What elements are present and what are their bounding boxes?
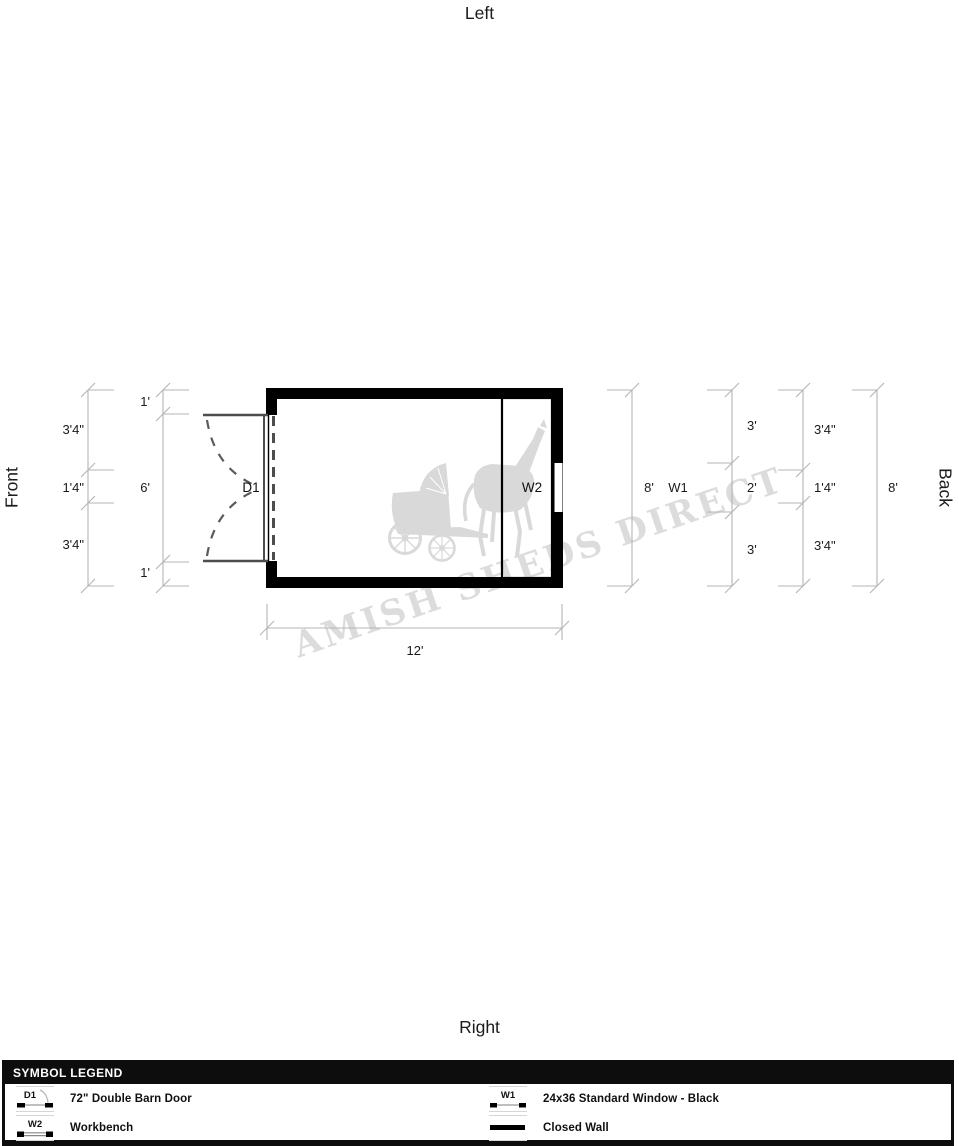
legend-item-door: D1 72" Double Barn Door bbox=[5, 1084, 478, 1113]
dim-left-inner-top: 1' bbox=[140, 394, 150, 409]
window-symbol-icon: W1 bbox=[489, 1086, 527, 1112]
window-w1-opening bbox=[555, 463, 563, 512]
symbol-legend: SYMBOL LEGEND D1 72" Double Barn Door W1… bbox=[2, 1060, 954, 1146]
svg-text:W2: W2 bbox=[28, 1119, 42, 1130]
dim-right-inner-bottom: 3' bbox=[747, 542, 757, 557]
door-swing-arc-bottom bbox=[207, 489, 259, 556]
legend-item-workbench: W2 Workbench bbox=[5, 1113, 478, 1142]
workbench-symbol-icon: W2 bbox=[16, 1115, 54, 1141]
dimension-chain-left-outer: 3'4" 1'4" 3'4" bbox=[62, 383, 114, 593]
dim-right-inner-top: 3' bbox=[747, 418, 757, 433]
window-ref-label: W1 bbox=[668, 480, 688, 495]
wall-front-lower bbox=[266, 561, 277, 588]
floor-plan: 3'4" 1'4" 3'4" 1' 6' 1' 8' W1 3' 2' 3' 3… bbox=[0, 0, 959, 1040]
dim-back-overall: 8' bbox=[888, 480, 898, 495]
dimension-chain-right-inner: 3' 2' 3' bbox=[707, 383, 757, 593]
dim-left-inner-mid: 6' bbox=[140, 480, 150, 495]
svg-text:W1: W1 bbox=[501, 1090, 516, 1101]
closed-wall-symbol-icon bbox=[489, 1115, 527, 1141]
dim-right-inner-mid: 2' bbox=[747, 480, 757, 495]
dim-right-outer-mid: 1'4" bbox=[814, 480, 836, 495]
door-d1: D1 bbox=[203, 415, 274, 561]
legend-item-closed-wall: Closed Wall bbox=[478, 1113, 951, 1142]
dim-left-outer-mid: 1'4" bbox=[62, 480, 84, 495]
dimension-chain-left-inner: 1' 6' 1' bbox=[140, 383, 189, 593]
door-label: D1 bbox=[242, 480, 259, 495]
legend-grid: D1 72" Double Barn Door W1 24x36 Standar… bbox=[5, 1084, 951, 1142]
dim-width-overall: 12' bbox=[407, 643, 424, 658]
dim-left-outer-top: 3'4" bbox=[62, 422, 84, 437]
dimension-front-overall: 8' W1 bbox=[607, 383, 688, 593]
workbench-w2: W2 bbox=[502, 398, 552, 578]
dimension-chain-right-outer: 3'4" 1'4" 3'4" bbox=[778, 383, 836, 593]
workbench-label: W2 bbox=[522, 480, 542, 495]
door-swing-arc-top bbox=[207, 420, 259, 487]
dimension-back-overall: 8' bbox=[852, 383, 898, 593]
legend-label-workbench: Workbench bbox=[70, 1122, 133, 1134]
legend-label-door: 72" Double Barn Door bbox=[70, 1093, 192, 1105]
dim-front-overall: 8' bbox=[644, 480, 654, 495]
legend-label-window: 24x36 Standard Window - Black bbox=[543, 1093, 719, 1105]
shed-walls bbox=[266, 388, 563, 588]
dim-right-outer-bottom: 3'4" bbox=[814, 538, 836, 553]
dimension-width-overall: 12' bbox=[260, 604, 569, 658]
dim-left-inner-bottom: 1' bbox=[140, 565, 150, 580]
dim-left-outer-bottom: 3'4" bbox=[62, 537, 84, 552]
legend-title: SYMBOL LEGEND bbox=[5, 1063, 951, 1084]
svg-text:D1: D1 bbox=[24, 1090, 37, 1101]
wall-front-upper bbox=[266, 388, 277, 415]
door-symbol-icon: D1 bbox=[16, 1086, 54, 1112]
legend-label-closed-wall: Closed Wall bbox=[543, 1122, 609, 1134]
legend-item-window: W1 24x36 Standard Window - Black bbox=[478, 1084, 951, 1113]
dim-right-outer-top: 3'4" bbox=[814, 422, 836, 437]
